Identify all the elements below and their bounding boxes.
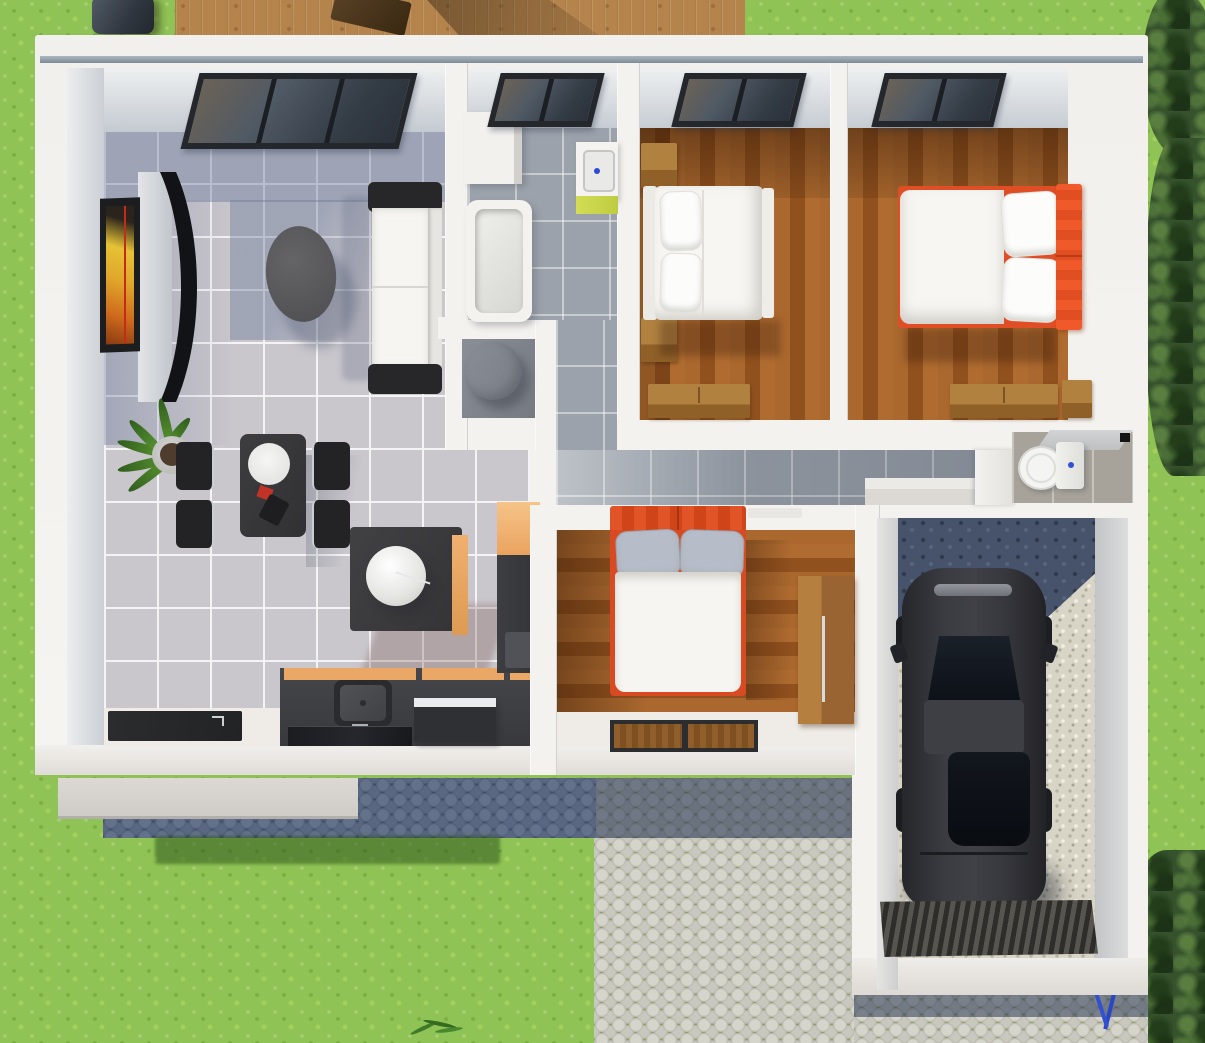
door-mat <box>610 720 686 752</box>
dining-chair <box>176 500 214 548</box>
wardrobe-handle <box>822 616 825 702</box>
bed2-headboard <box>1056 184 1082 330</box>
wardrobe <box>798 576 854 724</box>
sink-drain <box>360 700 366 706</box>
bed3-headboard-split <box>677 506 679 530</box>
door-mat <box>684 720 758 752</box>
bed2-duvet <box>900 190 1004 324</box>
bathroom-window <box>487 73 604 127</box>
appliance-white-top <box>414 698 496 707</box>
garage-ramp <box>880 900 1098 957</box>
bed3-side-shadow <box>746 540 792 700</box>
trees-mid-right <box>1146 138 1205 476</box>
hallway-end-counter <box>975 450 1015 505</box>
sofa-seat-seam <box>372 286 430 288</box>
plant-sprig <box>405 1018 469 1043</box>
bedroom1-window <box>671 73 806 127</box>
washbasin <box>576 142 618 200</box>
house-shadow-on-grass <box>155 836 500 864</box>
toilet-flush-button <box>1068 462 1074 468</box>
sprig-stroke <box>435 1026 463 1034</box>
island-orange-face <box>452 535 468 635</box>
car-rear-window <box>948 752 1030 846</box>
tv-screen <box>156 172 200 402</box>
potted-plant <box>108 398 238 508</box>
garage-right-wall-face <box>1095 518 1128 958</box>
bedroom3-door <box>748 508 802 518</box>
bed2-pillow <box>1000 257 1061 324</box>
car-trunk-line <box>920 852 1028 855</box>
sofa-armrest-bottom <box>368 364 442 394</box>
sofa-seat <box>372 208 430 368</box>
bedroom2-bed-shadow <box>905 328 1055 362</box>
laundry-right-wall <box>535 317 558 450</box>
counter-orange-strip <box>284 668 416 680</box>
counter-orange-strip <box>422 668 504 680</box>
washbasin-lime-cabinet <box>576 196 618 214</box>
window-mullion <box>256 79 277 143</box>
bathtub-basin <box>475 209 523 313</box>
bedroom1-bed-shadow <box>660 320 780 356</box>
bedroom1-nightstand-upper <box>641 143 677 188</box>
car-front-glass-strip <box>934 584 1012 596</box>
dining-chair <box>176 442 214 490</box>
bedroom2-window <box>871 73 1006 127</box>
wc-wall-vent <box>1120 433 1130 442</box>
bed2-pillow <box>1000 190 1062 258</box>
washing-machine <box>464 342 522 400</box>
bed1-duvet-fold <box>702 190 704 316</box>
living-room-window <box>181 73 418 149</box>
cobble-shadow-strip-right <box>358 778 596 838</box>
picture-frame <box>100 197 140 352</box>
window-mullion <box>324 79 345 143</box>
bedroom3-left-wall <box>530 505 557 775</box>
wall-bathroom-bedroom1 <box>617 63 640 450</box>
top-wall-cap <box>40 56 1143 63</box>
bedroom2-nightstand <box>1062 380 1092 418</box>
car-roof <box>924 700 1024 754</box>
dining-chair <box>312 442 350 490</box>
bathroom-corridor-floor <box>556 320 617 450</box>
bedroom2-dresser <box>950 384 1058 418</box>
wall-bedroom1-bedroom2 <box>830 63 848 420</box>
car-windshield <box>928 636 1020 700</box>
picture-art <box>106 206 134 345</box>
window-mullion <box>539 79 554 121</box>
bed3-duvet <box>615 572 741 692</box>
dresser-drawer-line <box>1003 387 1005 403</box>
glass-cooktop <box>288 726 412 746</box>
sofa-backrest <box>428 208 442 368</box>
west-wall-face <box>67 68 104 745</box>
entrance-mat-mark <box>222 716 224 726</box>
bathtub <box>466 200 532 322</box>
kitchen-sink <box>334 680 392 726</box>
hallway-side-counter <box>865 478 975 505</box>
bed1-pillow <box>659 252 703 313</box>
dining-chair <box>312 500 350 548</box>
dinner-plate <box>248 443 290 485</box>
porch-slab <box>58 778 358 819</box>
bed2-headboard-split <box>1056 255 1082 257</box>
dresser-drawer-line <box>698 387 700 403</box>
picture-red-line <box>124 206 126 344</box>
wall-south-of-bedrooms <box>617 420 1012 450</box>
window-mullion <box>732 79 747 121</box>
bed1-footboard <box>762 188 774 318</box>
island-decor-ball <box>366 546 426 606</box>
window-mullion <box>932 79 947 121</box>
washbasin-tap-dot <box>594 168 600 174</box>
driveway-shadow-band <box>594 778 856 838</box>
bedroom1-dresser <box>648 384 750 418</box>
bed1-pillow <box>659 190 703 251</box>
toilet-seat-line <box>1026 453 1056 483</box>
barbecue-grill <box>92 0 154 34</box>
floor-plan-render <box>0 0 1205 1043</box>
